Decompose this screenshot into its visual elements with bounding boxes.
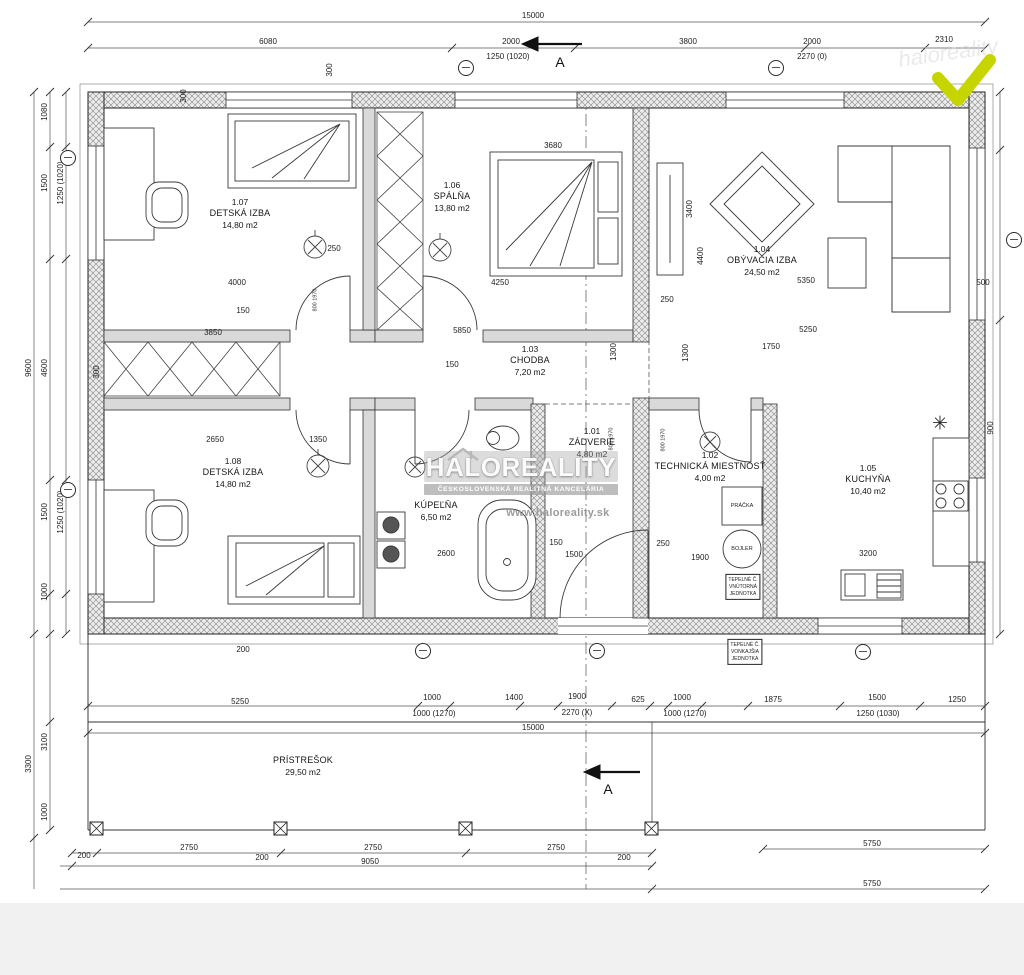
washer-label: PRÁČKA: [731, 503, 754, 509]
wardrobe: [377, 112, 423, 330]
check-icon[interactable]: [930, 48, 1000, 110]
watermark: HALOREALITY ČESKOSLOVENSKÁ REALITNÁ KANC…: [424, 451, 618, 495]
section-letter-bottom: A: [603, 781, 612, 797]
bottom-band: [0, 903, 1024, 975]
boiler-label: BOJLER: [731, 546, 752, 552]
house-roof-icon: [446, 447, 480, 462]
cooker-star-icon: ✳: [932, 413, 948, 436]
carport: [88, 634, 985, 830]
floor-plan-page: 15000608020001250 (1020)380020002270 (0)…: [0, 0, 1024, 975]
watermark-url: www.haloreality.sk: [488, 507, 628, 519]
section-letter-top: A: [555, 54, 564, 70]
carport-posts: [90, 822, 658, 835]
corridor-closet: [104, 342, 280, 396]
watermark-subtitle: ČESKOSLOVENSKÁ REALITNÁ KANCELÁRIA: [424, 484, 618, 495]
